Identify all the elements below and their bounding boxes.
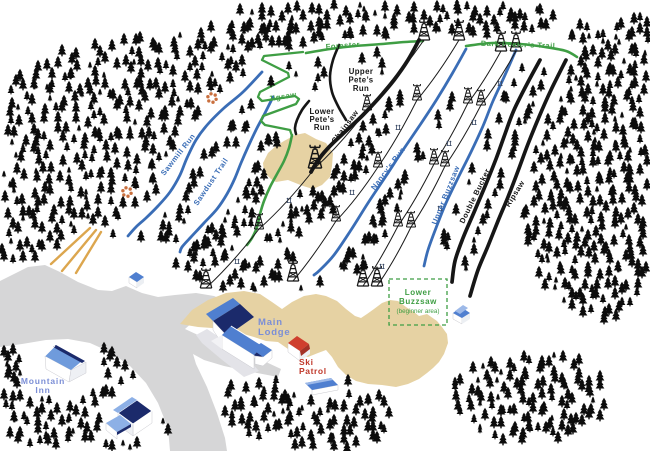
svg-text:(beginner area): (beginner area) [396,308,439,315]
svg-text:Buzzsaw: Buzzsaw [399,297,437,306]
svg-text:Lower: Lower [405,288,432,297]
